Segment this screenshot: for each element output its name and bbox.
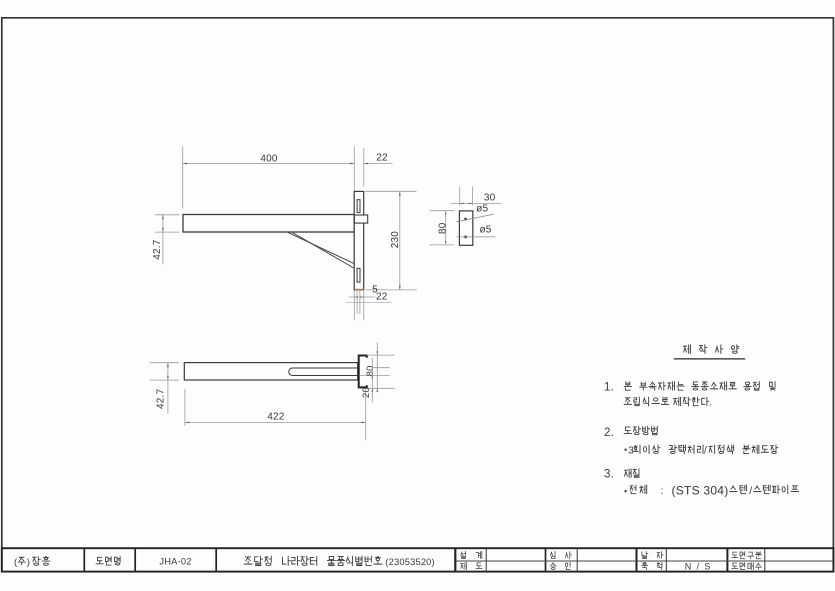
svg-text:ø5: ø5 [476, 203, 488, 214]
svg-text:42.7: 42.7 [155, 389, 166, 410]
svg-text:22: 22 [376, 291, 388, 302]
svg-text:(STS 304): (STS 304) [672, 484, 729, 498]
svg-text:20: 20 [361, 387, 372, 398]
svg-text:): ) [27, 557, 30, 568]
svg-text:N / S: N / S [685, 561, 712, 571]
svg-text:ø5: ø5 [479, 225, 491, 236]
svg-text:/: / [749, 485, 752, 497]
svg-text:2.: 2. [604, 427, 614, 439]
svg-text:(23053520): (23053520) [385, 557, 435, 567]
svg-text:42.7: 42.7 [152, 239, 163, 260]
svg-text:30: 30 [484, 193, 496, 204]
svg-text:22: 22 [376, 152, 388, 163]
svg-text:1.: 1. [604, 382, 614, 394]
svg-text:400: 400 [260, 154, 278, 165]
svg-text:230: 230 [390, 231, 401, 249]
svg-text:3.: 3. [604, 468, 614, 480]
svg-text:.: . [709, 397, 712, 409]
svg-text:80: 80 [365, 365, 376, 376]
svg-text::: : [661, 485, 664, 497]
svg-text:422: 422 [267, 411, 285, 422]
svg-text:JHA-02: JHA-02 [159, 556, 191, 566]
svg-text:3: 3 [628, 445, 634, 456]
svg-text:80: 80 [437, 222, 448, 234]
svg-text:/: / [704, 445, 707, 456]
